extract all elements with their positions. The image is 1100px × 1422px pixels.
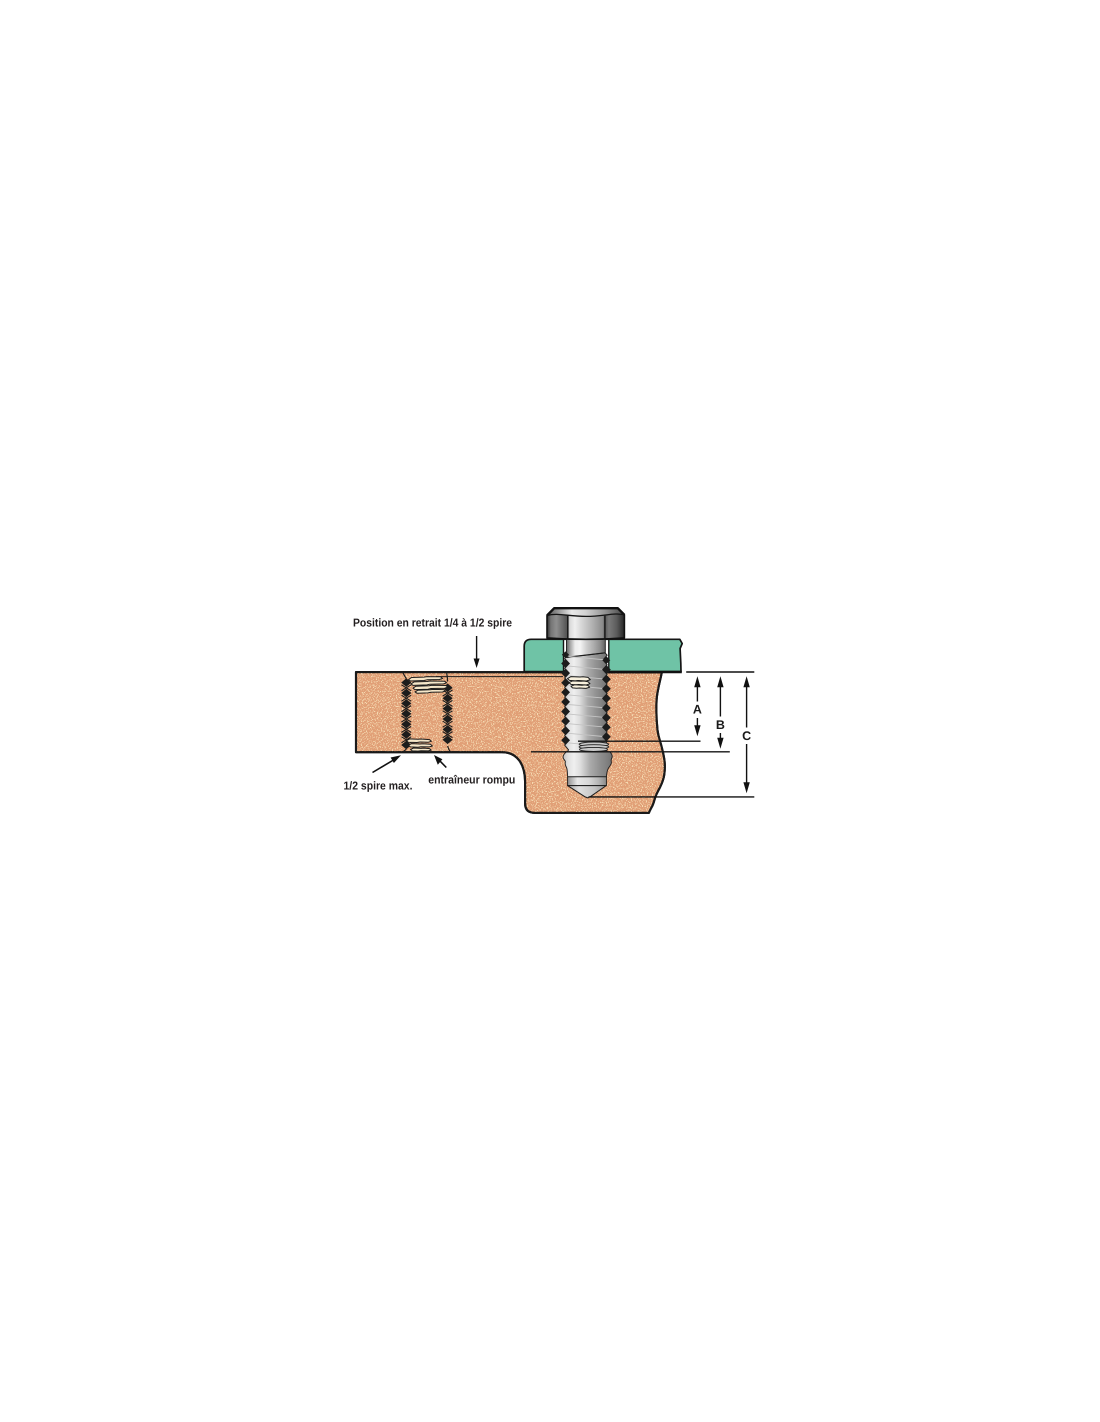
svg-text:C: C — [742, 729, 751, 743]
svg-text:entraîneur rompu: entraîneur rompu — [428, 775, 515, 787]
svg-text:A: A — [693, 703, 702, 717]
svg-text:Position en retrait 1/4 à 1/2: Position en retrait 1/4 à 1/2 spire — [353, 618, 512, 630]
svg-text:B: B — [716, 718, 725, 732]
svg-text:1/2 spire max.: 1/2 spire max. — [344, 780, 413, 792]
